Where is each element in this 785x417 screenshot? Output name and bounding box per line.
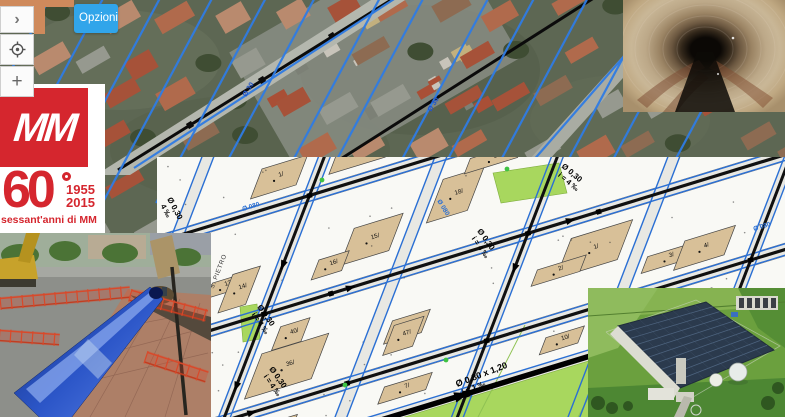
year-end: 2015	[66, 196, 95, 209]
locate-me-button[interactable]	[0, 34, 34, 65]
chevron-right-icon: ›	[14, 11, 19, 29]
slide-collage: Ø 30Ø 30 › + Opzioni… MM 60 1955 2015 se…	[0, 0, 785, 417]
sewer-tunnel-photo	[623, 0, 785, 112]
crosshair-locate-icon	[9, 41, 26, 58]
treatment-plant-photo	[588, 288, 785, 417]
expand-panel-button[interactable]: ›	[0, 6, 34, 33]
anniversary-tagline: sessant'anni di MM	[1, 214, 105, 226]
pipe-worksite-photo	[0, 233, 211, 417]
mm-logo: MM	[0, 88, 88, 167]
anniversary-60: 60	[2, 164, 52, 216]
options-button[interactable]: Opzioni…	[74, 4, 118, 33]
mm-logo-block: MM 60 1955 2015 sessant'anni di MM	[0, 84, 105, 233]
plus-icon: +	[11, 71, 22, 93]
toolbar-accent-strip	[34, 0, 45, 34]
degree-ring-icon	[62, 172, 71, 181]
zoom-in-button[interactable]: +	[0, 66, 34, 97]
